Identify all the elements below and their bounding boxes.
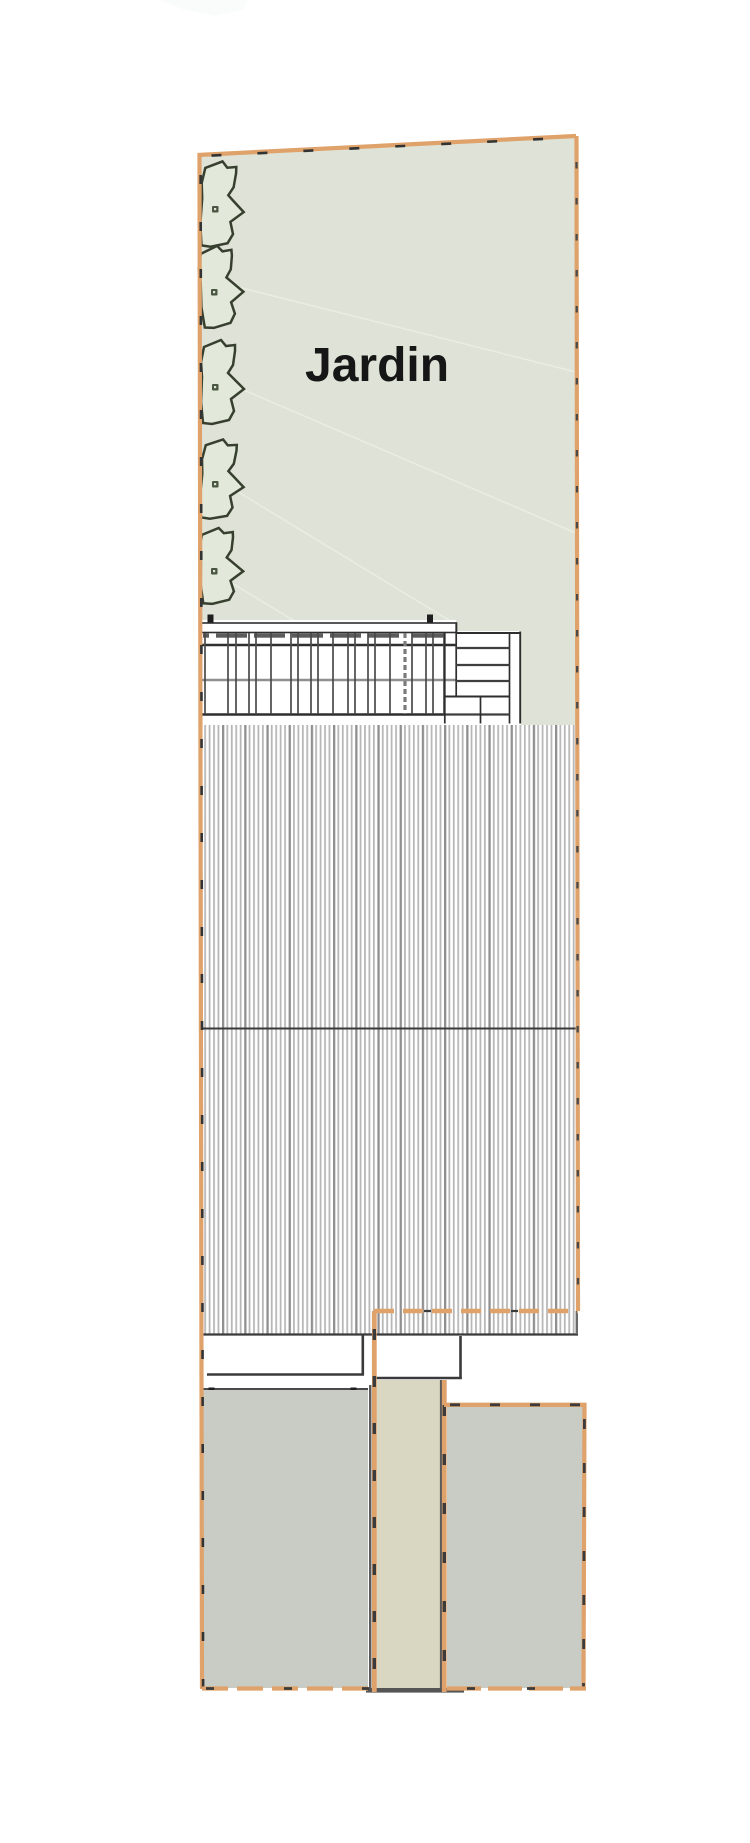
svg-text:Jardin: Jardin xyxy=(305,339,449,392)
